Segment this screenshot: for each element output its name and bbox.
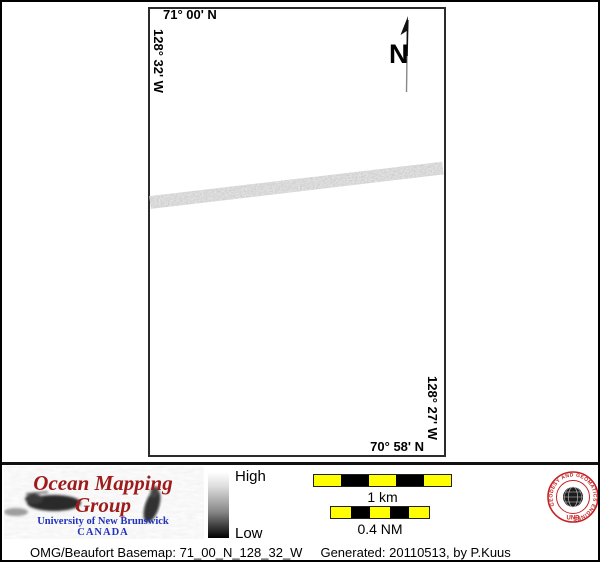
omg-logo-title: Ocean Mapping Group — [4, 472, 202, 516]
scalebar-km — [313, 474, 452, 487]
scalebar-km-label: 1 km — [313, 489, 452, 505]
footer-caption: OMG/Beaufort Basemap: 71_00_N_128_32_WGe… — [30, 545, 590, 560]
omg-logo-institution: University of New Brunswick — [4, 516, 202, 527]
scalebar-nm-label: 0.4 NM — [330, 521, 430, 537]
basemap-page: 71° 00' N 128° 32' W 128° 27' W 70° 58' … — [0, 0, 600, 562]
unb-geodesy-seal: GEODESY AND GEOMATICS ENGINEERING UNB — [546, 470, 600, 524]
latitude-label-top: 71° 00' N — [163, 7, 217, 22]
panel-separator — [2, 462, 600, 465]
scalebar-nm — [330, 506, 430, 519]
seal-acronym: UNB — [567, 516, 581, 522]
intensity-colorbar — [208, 472, 229, 538]
longitude-label-left: 128° 32' W — [151, 29, 166, 93]
north-letter: N — [389, 39, 409, 69]
colorbar-low-label: Low — [235, 525, 263, 542]
footer-generated-text: Generated: 20110513, by P.Kuus — [320, 545, 510, 560]
longitude-label-right: 128° 27' W — [425, 376, 440, 440]
footer-basemap-text: OMG/Beaufort Basemap: 71_00_N_128_32_W — [30, 545, 302, 560]
omg-logo-country: CANADA — [4, 527, 202, 538]
globe-icon — [563, 487, 583, 507]
colorbar-high-label: High — [235, 468, 266, 485]
north-arrow-icon: N — [387, 14, 421, 96]
latitude-label-bottom: 70° 58' N — [320, 439, 424, 454]
